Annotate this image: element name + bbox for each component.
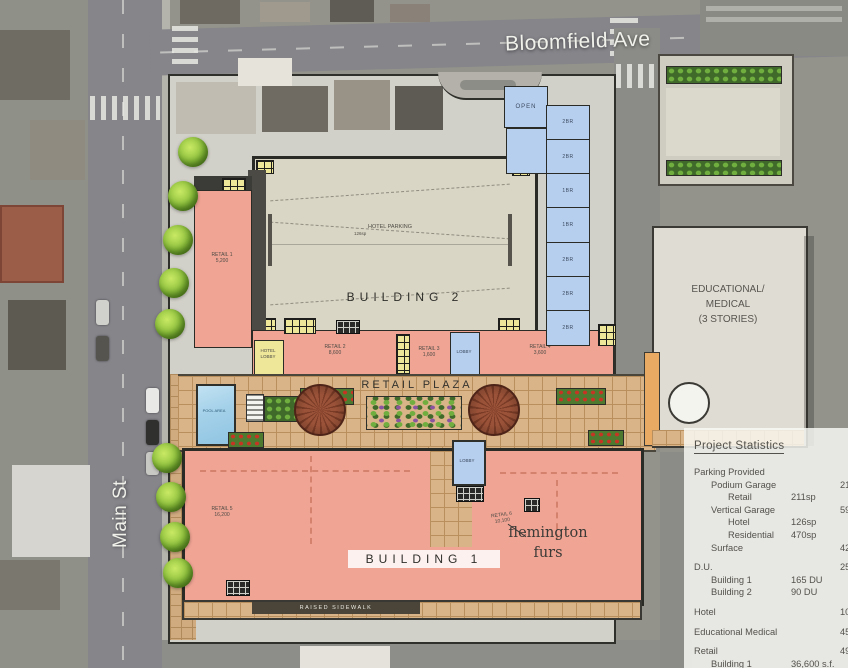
- aerial-building: [12, 465, 90, 557]
- street-tree: [160, 522, 190, 552]
- stats-row: Educational Medical 45,00: [694, 627, 848, 640]
- parked-car: [146, 388, 159, 413]
- raised-sidewalk-label-strip: RAISED SIDEWALK: [252, 602, 420, 614]
- educational-shadow: [804, 236, 814, 446]
- stats-row: Parking Provided: [694, 467, 848, 480]
- residential-unit: 2BR: [546, 276, 590, 312]
- stats-row: D.U. 255: [694, 562, 848, 575]
- residential-unit: 2BR: [546, 105, 590, 141]
- parked-car: [96, 300, 109, 325]
- building1-phase-line: [310, 456, 312, 544]
- street-tree: [178, 137, 208, 167]
- street-tree: [163, 225, 193, 255]
- stair-core: [598, 324, 616, 346]
- site-plan-canvas: Bloomfield Ave Main St HOTEL PARKING 126…: [0, 0, 848, 668]
- stats-row: Building 1 36,600 s.f.: [694, 659, 848, 668]
- northeast-hedge: [666, 160, 782, 176]
- aerial-building: [180, 0, 240, 24]
- existing-building: [262, 86, 328, 132]
- aerial-building: [390, 4, 430, 22]
- stats-row: Building 1 165 DU: [694, 575, 848, 588]
- pool-label: POOL AREA: [196, 408, 232, 413]
- residential-unit-west: [506, 128, 548, 174]
- road-bottom: [162, 640, 692, 668]
- plaza-flower-planter: [588, 430, 624, 446]
- residential-units-column: 2BR2BR1BR1BR2BR2BR2BR: [546, 106, 590, 346]
- stats-row: Vertical Garage 596 S: [694, 505, 848, 518]
- parked-car: [146, 420, 159, 445]
- building1-phase-line: [500, 472, 618, 474]
- stair-core-dark: [336, 320, 360, 334]
- aerial-building-red-roof: [0, 205, 64, 283]
- stats-row: Retail 211sp: [694, 492, 848, 505]
- residential-unit: 2BR: [546, 139, 590, 175]
- existing-building: [176, 82, 256, 134]
- residential-unit: 2BR: [546, 310, 590, 346]
- street-tree: [152, 443, 182, 473]
- street-tree: [159, 268, 189, 298]
- deck-center-line: [270, 244, 510, 245]
- plaza-center-planter: [366, 396, 462, 430]
- aerial-building: [260, 2, 310, 22]
- stair-core-dark: [524, 498, 540, 512]
- aerial-building: [330, 0, 374, 22]
- aerial-building: [0, 560, 60, 610]
- building1-phase-line: [200, 470, 410, 472]
- building1-lobby-label: LOBBY: [452, 458, 482, 464]
- street-tree: [155, 309, 185, 339]
- building2-label: BUILDING 2: [330, 290, 480, 304]
- deck-wall-tick: [508, 214, 512, 266]
- grand-stair: [246, 394, 264, 422]
- retail1-label: RETAIL 15,200: [196, 252, 248, 265]
- stair-core: [396, 334, 410, 374]
- hotel-parking-label: HOTEL PARKING 126sp: [340, 224, 440, 237]
- main-st-label: Main St: [110, 480, 132, 548]
- retail5-label: RETAIL 516,200: [196, 506, 248, 519]
- plaza-tree: [468, 384, 520, 436]
- project-statistics-panel: Project Statistics Parking Provided Podi…: [684, 428, 848, 668]
- hotel-lobby-label: HOTEL LOBBY: [254, 348, 282, 359]
- plaza-flower-planter: [228, 432, 264, 448]
- existing-building: [334, 80, 390, 130]
- residential-unit: 1BR: [546, 173, 590, 209]
- raised-sidewalk-label: RAISED SIDEWALK: [300, 605, 373, 611]
- residential-open-court: OPEN: [504, 86, 548, 128]
- retail2-label: RETAIL 28,600: [300, 344, 370, 357]
- east-road-crosswalk: [616, 64, 658, 88]
- residential-lobby-label: LOBBY: [450, 349, 478, 355]
- aerial-building: [0, 30, 70, 100]
- stair-core-dark: [456, 486, 484, 502]
- bloomfield-ave-label: Bloomfield Ave: [505, 27, 651, 56]
- parked-car: [96, 336, 109, 361]
- plaza-flower-planter: [556, 388, 606, 405]
- street-tree: [168, 181, 198, 211]
- northeast-hedge: [666, 66, 782, 84]
- stair-core-dark: [226, 580, 250, 596]
- stats-rows: Parking Provided Podium Garage 211 S Ret…: [694, 467, 848, 668]
- residential-unit: 2BR: [546, 242, 590, 278]
- existing-building: [238, 58, 292, 86]
- stats-row: Surface 42 S: [694, 543, 848, 556]
- flemington-furs-label: flemington furs: [496, 524, 600, 563]
- plaza-tree: [294, 384, 346, 436]
- aerial-parking-stalls: [706, 6, 842, 22]
- stats-row: Hotel 103: [694, 607, 848, 620]
- retail1-building: [194, 190, 252, 348]
- main-st-crosswalk: [90, 96, 160, 120]
- aerial-building: [8, 300, 66, 370]
- aerial-building: [30, 120, 85, 180]
- deck-wall-tick: [268, 214, 272, 266]
- residential-unit: 1BR: [546, 207, 590, 243]
- stats-row: Hotel 126sp: [694, 517, 848, 530]
- stair-core: [284, 318, 316, 334]
- round-plaza-feature: [668, 382, 710, 424]
- stats-row: Retail 49,60: [694, 646, 848, 659]
- aerial-building: [300, 646, 390, 668]
- open-label: OPEN: [515, 104, 536, 110]
- retail3-label: RETAIL 31,600: [410, 346, 448, 359]
- educational-medical-label: EDUCATIONAL/ MEDICAL (3 STORIES): [656, 282, 800, 327]
- street-tree: [156, 482, 186, 512]
- street-tree: [163, 558, 193, 588]
- stats-row: Podium Garage 211 S: [694, 480, 848, 493]
- retail-plaza-label: RETAIL PLAZA: [352, 379, 482, 391]
- northeast-court: [666, 88, 780, 156]
- stats-row: Building 2 90 DU: [694, 587, 848, 600]
- stats-row: Residential 470sp: [694, 530, 848, 543]
- stats-title: Project Statistics: [694, 440, 784, 454]
- bloomfield-crosswalk-west: [172, 26, 198, 66]
- existing-building: [395, 86, 443, 130]
- building1-label: BUILDING 1: [348, 550, 500, 568]
